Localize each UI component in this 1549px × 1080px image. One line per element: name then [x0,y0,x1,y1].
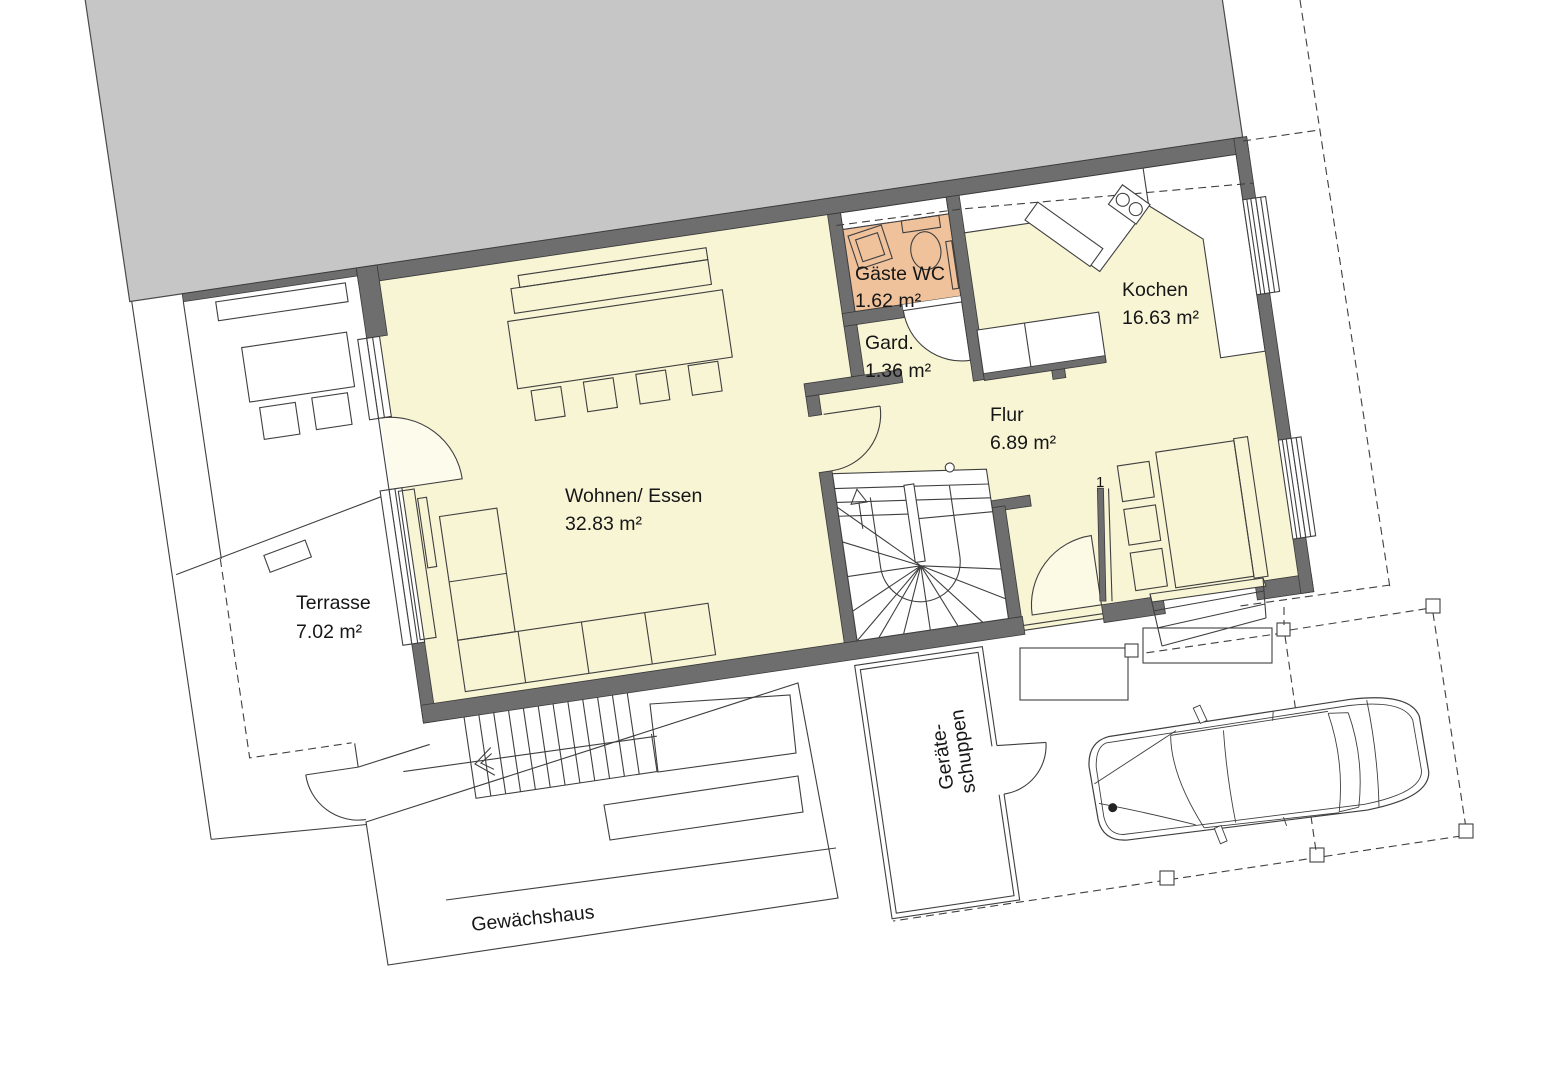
svg-text:32.83 m²: 32.83 m² [565,513,642,535]
svg-text:Kochen: Kochen [1122,279,1188,301]
svg-text:16.63 m²: 16.63 m² [1122,307,1199,329]
svg-text:Wohnen/ Essen: Wohnen/ Essen [565,485,702,507]
svg-text:Terrasse: Terrasse [296,592,371,614]
svg-text:Flur: Flur [990,404,1024,426]
svg-text:1.62 m²: 1.62 m² [855,290,922,312]
svg-text:1.36 m²: 1.36 m² [865,360,932,382]
svg-text:6.89 m²: 6.89 m² [990,432,1057,454]
svg-text:Gard.: Gard. [865,332,914,354]
svg-text:Gäste WC: Gäste WC [855,263,945,285]
svg-text:1: 1 [1096,474,1104,491]
svg-text:7.02 m²: 7.02 m² [296,621,363,643]
